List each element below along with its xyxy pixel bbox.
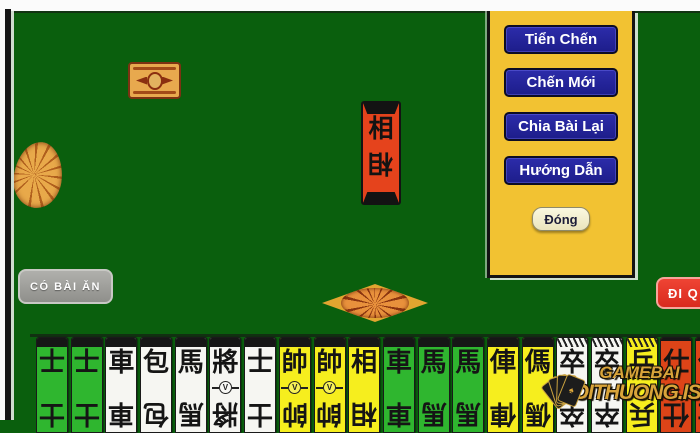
table-left-highlight bbox=[11, 11, 14, 420]
card-character: 馬 bbox=[178, 347, 204, 381]
facedown-card bbox=[128, 62, 181, 99]
help-button[interactable]: Hướng Dẫn bbox=[504, 156, 618, 185]
take-card-button[interactable]: CÓ BÀI ĂN bbox=[18, 269, 113, 304]
hand-card[interactable]: 馬 馬 bbox=[452, 337, 484, 433]
card-character-inverted: 卒 bbox=[594, 395, 620, 429]
card-character-inverted: 馬 bbox=[421, 395, 447, 429]
card-character-inverted: 馬 bbox=[455, 395, 481, 429]
card-cap bbox=[106, 338, 136, 347]
card-character-inverted: 仕 bbox=[663, 395, 689, 429]
card-character: 士 bbox=[39, 347, 65, 381]
card-cap bbox=[37, 338, 67, 347]
card-cap bbox=[592, 338, 622, 347]
card-character: 仕 bbox=[663, 347, 689, 381]
card-character-inverted: 俥 bbox=[490, 395, 516, 429]
card-character-inverted: 傌 bbox=[525, 395, 551, 429]
card-cap bbox=[696, 338, 700, 347]
hand-card[interactable]: 相 相 bbox=[348, 337, 380, 433]
card-cap bbox=[557, 338, 587, 347]
hand-card[interactable]: 士 士 bbox=[36, 337, 68, 433]
v-medallion-icon: V bbox=[288, 381, 301, 394]
hand-card[interactable]: 仕 仕 bbox=[660, 337, 692, 433]
hand-card[interactable]: 馬 馬 bbox=[418, 337, 450, 433]
pass-button[interactable]: ĐI Q bbox=[656, 277, 700, 309]
hand-card[interactable]: 士 士 bbox=[71, 337, 103, 433]
card-cap bbox=[661, 338, 691, 347]
card-cap bbox=[384, 338, 414, 347]
card-character-inverted: 帥 bbox=[316, 395, 342, 429]
card-cap bbox=[349, 338, 379, 347]
window-top-margin bbox=[0, 0, 700, 11]
card-character-inverted: 車 bbox=[386, 395, 412, 429]
card-top-cap bbox=[363, 103, 399, 114]
hand-card[interactable]: 車 車 bbox=[383, 337, 415, 433]
redeal-button[interactable]: Chia Bài Lại bbox=[504, 112, 618, 141]
card-character-inverted: 相 bbox=[351, 395, 377, 429]
card-back-ornament bbox=[136, 77, 147, 85]
card-character: 馬 bbox=[421, 347, 447, 381]
card-character: 俥 bbox=[490, 347, 516, 381]
hand-card[interactable]: 傌 傌 bbox=[522, 337, 554, 433]
hand-card[interactable]: 俥 俥 bbox=[487, 337, 519, 433]
card-character: 兵 bbox=[629, 347, 655, 381]
player-hand: 士 士 士 士 車 車 包 包 馬 馬 將 V 將 士 士 bbox=[36, 337, 700, 433]
card-cap bbox=[453, 338, 483, 347]
card-cap bbox=[419, 338, 449, 347]
card-bottom-cap bbox=[363, 192, 399, 203]
card-cap bbox=[315, 338, 345, 347]
hand-card[interactable]: 卒 卒 bbox=[556, 337, 588, 433]
card-character-inverted: 卒 bbox=[559, 395, 585, 429]
card-cap bbox=[627, 338, 657, 347]
hand-card[interactable]: 帥 V 帥 bbox=[314, 337, 346, 433]
card-character-inverted: 馬 bbox=[178, 395, 204, 429]
card-cap bbox=[488, 338, 518, 347]
gold-diamond-ornament bbox=[322, 284, 428, 322]
center-played-card: 相 相 bbox=[361, 101, 401, 205]
card-character: 傌 bbox=[525, 347, 551, 381]
card-character: 車 bbox=[108, 347, 134, 381]
hand-card[interactable]: 將 V 將 bbox=[209, 337, 241, 433]
card-character-inverted: 士 bbox=[74, 395, 100, 429]
card-character: 相 bbox=[351, 347, 377, 381]
continue-match-button[interactable]: Tiển Chến bbox=[504, 25, 618, 54]
card-back-ornament bbox=[162, 77, 173, 85]
v-medallion-icon: V bbox=[323, 381, 336, 394]
card-character-inverted: 相 bbox=[368, 148, 393, 178]
hand-card[interactable]: 士 士 bbox=[244, 337, 276, 433]
card-character-inverted: 將 bbox=[212, 395, 238, 429]
hand-card[interactable]: 兵 兵 bbox=[626, 337, 658, 433]
card-cap bbox=[280, 338, 310, 347]
card-cap bbox=[245, 338, 275, 347]
new-match-button[interactable]: Chến Mới bbox=[504, 68, 618, 97]
card-character: 士 bbox=[247, 347, 273, 381]
card-cap bbox=[72, 338, 102, 347]
hand-card[interactable]: 車 車 bbox=[105, 337, 137, 433]
hand-card[interactable]: 卒 卒 bbox=[591, 337, 623, 433]
card-cap bbox=[176, 338, 206, 347]
card-character-inverted: 車 bbox=[108, 395, 134, 429]
card-back-ornament bbox=[133, 91, 176, 94]
hand-card[interactable]: 仕 仕 bbox=[695, 337, 700, 433]
flower-pattern bbox=[341, 288, 409, 318]
card-back-emblem bbox=[147, 72, 163, 90]
card-character: 帥 bbox=[282, 347, 308, 381]
card-character: 卒 bbox=[594, 347, 620, 381]
v-medallion-icon: V bbox=[219, 381, 232, 394]
card-cap bbox=[210, 338, 240, 347]
card-character-inverted: 士 bbox=[39, 395, 65, 429]
game-menu-panel: Tiển Chến Chến Mới Chia Bài Lại Hướng Dẫ… bbox=[487, 11, 635, 278]
gold-leaf-ornament bbox=[11, 140, 66, 211]
hand-card[interactable]: 帥 V 帥 bbox=[279, 337, 311, 433]
card-cap bbox=[523, 338, 553, 347]
card-character: 車 bbox=[386, 347, 412, 381]
card-cap bbox=[141, 338, 171, 347]
card-character: 帥 bbox=[316, 347, 342, 381]
card-character: 馬 bbox=[455, 347, 481, 381]
card-character-inverted: 包 bbox=[143, 395, 169, 429]
card-character: 士 bbox=[74, 347, 100, 381]
card-character-inverted: 帥 bbox=[282, 395, 308, 429]
hand-card[interactable]: 包 包 bbox=[140, 337, 172, 433]
card-character: 將 bbox=[212, 347, 238, 381]
close-button[interactable]: Đóng bbox=[532, 207, 590, 231]
card-character: 卒 bbox=[559, 347, 585, 381]
card-back-ornament bbox=[133, 67, 176, 70]
card-character-inverted: 士 bbox=[247, 395, 273, 429]
card-character: 包 bbox=[143, 347, 169, 381]
hand-card[interactable]: 馬 馬 bbox=[175, 337, 207, 433]
card-character: 相 bbox=[368, 114, 393, 144]
card-character-inverted: 兵 bbox=[629, 395, 655, 429]
